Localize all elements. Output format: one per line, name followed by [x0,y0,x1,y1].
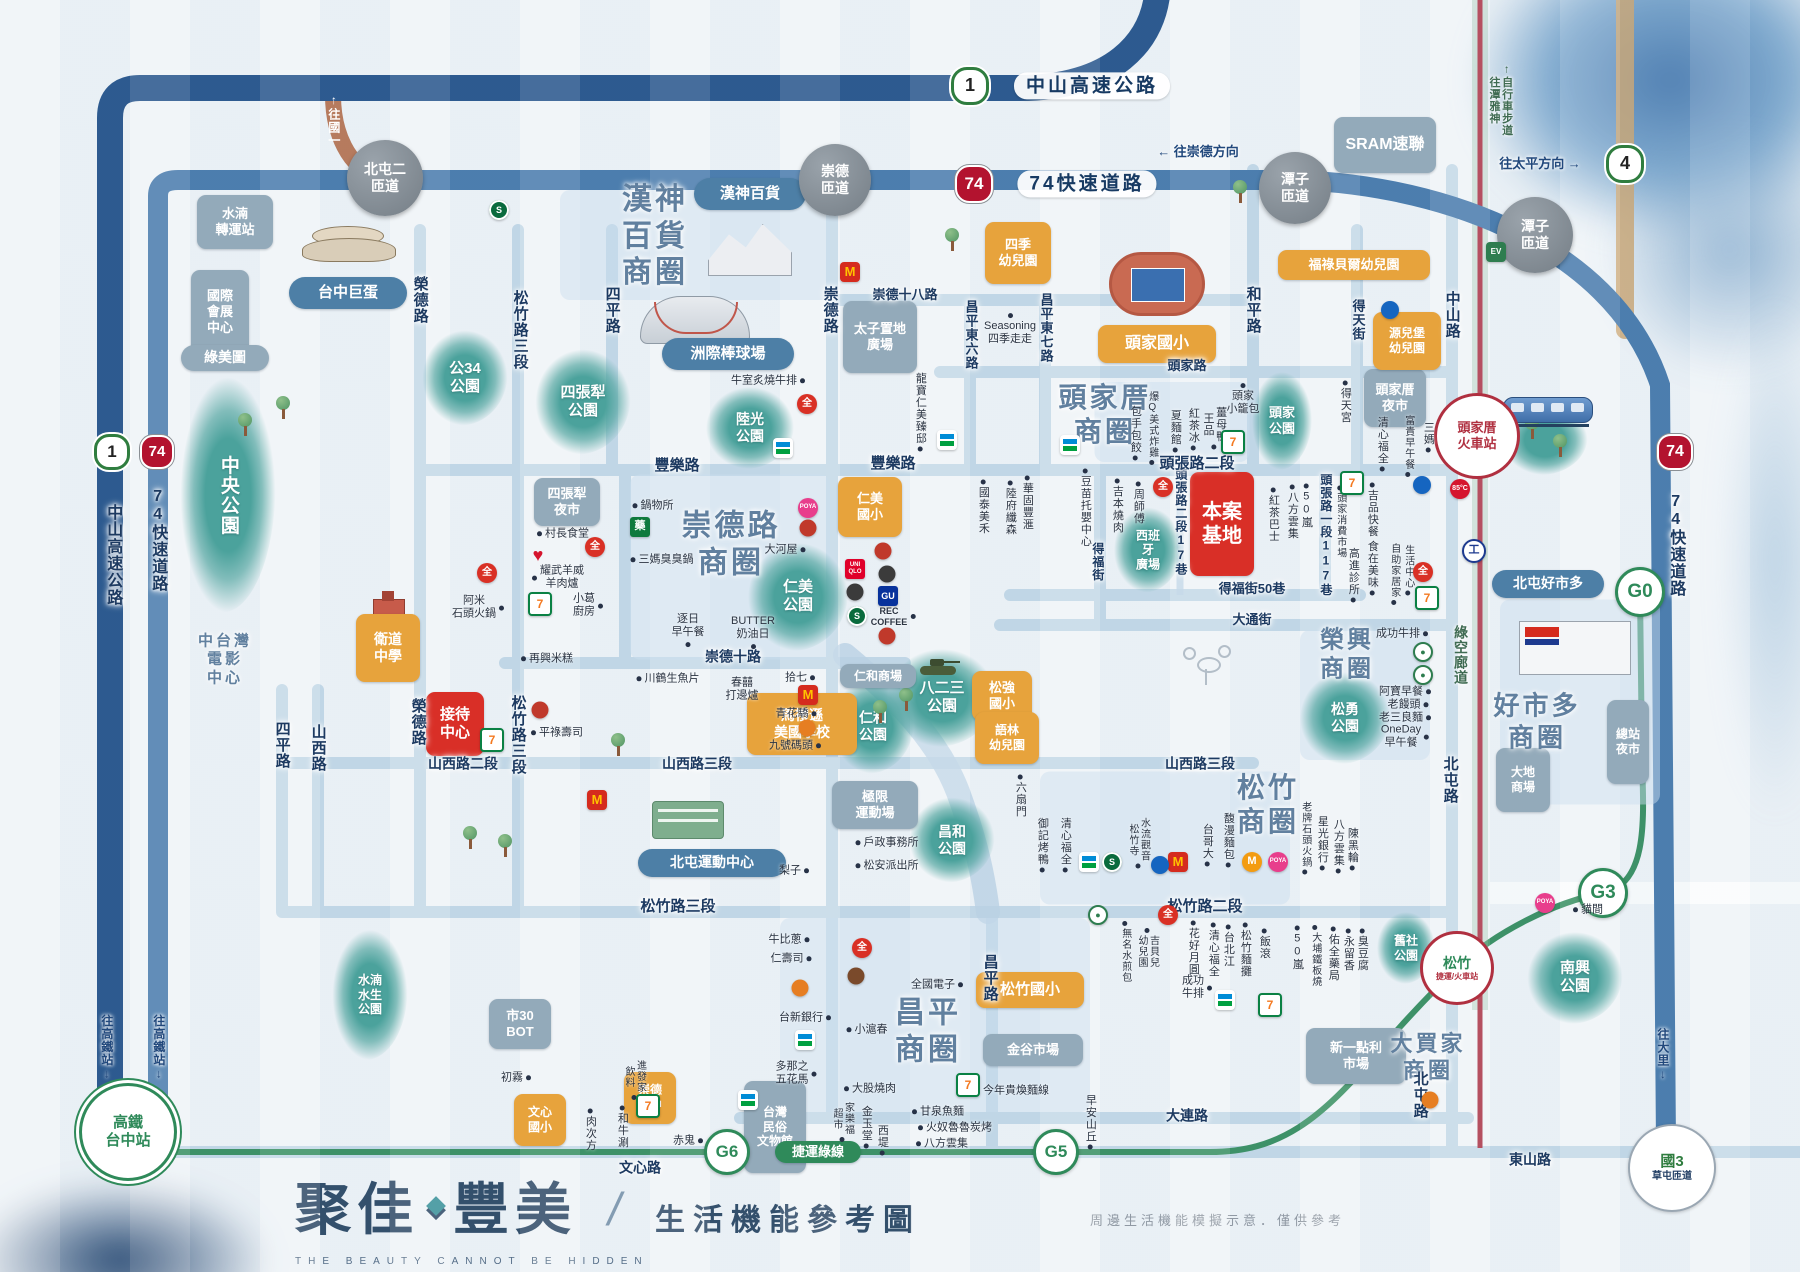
poi-label: 豆苗托嬰中心 [1079,476,1092,548]
box-北屯好市多: 北屯好市多 [1492,570,1604,598]
poi-label: 小葛 廚房 [573,593,595,620]
poi-老牌石頭火鍋: 老牌石頭火鍋 [1299,802,1311,875]
poi-戶政事務所: 戶政事務所 [856,836,919,849]
poi-label: 馥漫麵包 [1222,813,1235,861]
ic-潭子匝道: 潭子 匝道 [1497,197,1573,273]
icon-orangec-icon [792,980,809,997]
poi-六扇門: 六扇門 [1014,775,1027,818]
icon-greenc-icon: ● [1413,642,1433,662]
poi-dot-icon [918,1126,923,1131]
gst-G6: G6 [704,1129,750,1175]
st-松竹路三段: 松竹路三段 [511,290,528,370]
poi-dot-icon [1225,863,1230,868]
icon-bank-icon [1151,856,1169,874]
poi-花好月圓: 花好月圓 [1187,921,1200,976]
icon-greenc-icon: ● [1413,665,1433,685]
poi-label: 高進診所 [1347,548,1360,596]
poi-label: 小滬春 [855,1023,888,1036]
poi-dot-icon [812,712,817,717]
poi-label: 台新銀行 [779,1011,823,1024]
tree-trunk [244,426,247,436]
park-label: 公34 公園 [449,360,481,397]
poi-label: 50嵐 [1291,933,1304,971]
poi-label: 周師傅 [1132,489,1145,525]
box-市30BOT: 市30 BOT [489,999,551,1049]
icon-ev-icon: EV [1486,242,1506,262]
poi-dot-icon [1242,923,1247,928]
icon-red-icon [879,628,896,645]
poi-村長食堂: 村長食堂 [537,527,589,540]
box-四季幼兒園: 四季 幼兒園 [985,222,1051,284]
tree-crown [276,396,290,410]
poi-赤鬼: 赤鬼 [673,1134,703,1147]
poi-dot-icon [1145,928,1150,933]
poi-貓間: 貓間 [1573,903,1603,916]
sk-tank [920,657,960,675]
st-得福街: 得福街 [1090,543,1104,582]
st-中山路: 中山路 [1443,291,1460,339]
box-北屯運動中心: 北屯運動中心 [638,849,786,877]
park-四張犁公園: 四張犁 公園 [536,350,631,455]
poi-label: 耀武羊威 羊肉爐 [540,565,584,592]
st-四平路: 四平路 [603,286,620,334]
st-崇德路: 崇德路 [821,286,838,334]
poi-八方雲集: 八方雲集 [916,1137,968,1150]
poi-dot-icon [1406,591,1411,596]
poi-dot-icon [526,1076,531,1081]
poi-飯滾: 飯滾 [1258,929,1271,960]
poi-dot-icon [840,1137,845,1142]
poi-家樂福超市: 家樂福 超市 [831,1102,854,1142]
poi-label: 台哥大 [1201,824,1214,860]
rl-中山高速公路: 中山高速公路 [1014,72,1170,99]
icon-uniqlo-icon: UNI QLO [845,559,865,579]
poi-dot-icon [801,548,806,553]
dir-↑自行車步道往潭雅神: ↑自行車步道 往潭雅神 [1487,64,1512,137]
poi-dot-icon [499,606,504,611]
tree-crown [945,228,959,242]
box-源兒堡幼兒園: 源兒堡 幼兒園 [1373,312,1441,370]
poi-label: 逐日 早午餐 [672,613,705,640]
poi-dot-icon [619,1106,624,1111]
park-西班牙廣場: 西班牙 廣場 [1114,508,1182,593]
icon-brown-icon [848,968,865,985]
poi-dot-icon [856,841,861,846]
icon-gu-icon: GU [878,586,898,606]
poi-dot-icon [1359,929,1364,934]
poi-dot-icon [916,1142,921,1147]
box-頭家厝夜市: 頭家厝 夜市 [1364,369,1426,427]
poi-50嵐: 50嵐 [1291,926,1304,971]
poi-平祿壽司: 平祿壽司 [531,726,583,739]
poi-dot-icon [587,1109,592,1114]
zone-好市多商圈: 好市多 商圈 [1493,690,1580,753]
tree-crown [238,413,252,427]
icon-poya-icon: POYA [798,498,818,518]
st-山西路三段: 山西路三段 [662,755,732,772]
poi-dot-icon [1204,862,1209,867]
tree-287 [462,826,478,850]
sk-court [652,801,724,839]
poi-松竹麵攤: 松竹麵攤 [1239,923,1252,978]
icon-pxmart-icon: 全 [1158,905,1178,925]
poi-dot-icon [1424,735,1429,740]
tree-trunk [282,409,285,419]
box-語林幼兒園: 語林 幼兒園 [975,712,1039,764]
poi-label: 今年貴煥麵線 [983,1084,1049,1097]
brand-name-2: 豐美 [453,1165,577,1246]
poi-鍋物所: 鍋物所 [633,499,674,512]
park-水湳水生公園: 水湳 水生 公園 [333,930,408,1060]
park-中央公園: 中央公園 [181,378,276,613]
box-文心國小: 文心 國小 [514,1094,566,1146]
poi-多那之五花馬: 多那之 五花馬 [776,1061,817,1088]
poi-頭家小籠包: 頭家 小籠包 [1227,383,1260,417]
poi-dot-icon [637,677,642,682]
ic-北屯二匝道: 北屯二 匝道 [347,140,423,216]
tree-289 [1232,180,1248,204]
st-中山高速公路: 中山高速公路 [103,504,121,606]
park-label: 中央公園 [217,455,239,535]
tree-286 [275,396,291,420]
poi-label: 全國電子 [911,978,955,991]
poi-dot-icon [1426,716,1431,721]
st-頭張路二段17巷: 頭張路二段17巷 [1173,468,1187,576]
poi-label: 50嵐 [1300,491,1313,529]
poi-包手包餃: 包手包餃 [1129,406,1142,461]
poi-dot-icon [1330,927,1335,932]
poi-dot-icon [1369,591,1374,596]
poi-label: 肉次方 [584,1116,597,1152]
zone-榮興商圈: 榮興 商圈 [1320,626,1374,685]
poi-label: 牛比蔥 [769,933,802,946]
poi-dot-icon [686,642,691,647]
poi-dot-icon [1342,381,1347,386]
poi-爆Q美式炸雞: 爆Q美式炸雞 [1146,391,1158,465]
park-松勇公園: 松勇 公園 [1300,672,1390,764]
poi-dot-icon [1062,868,1067,873]
st-崇德十路: 崇德十路 [705,648,761,665]
icon-mcd-icon: M [798,685,818,705]
sk-costco [1519,621,1631,675]
poi-得天宮: 得天宮 [1339,381,1352,424]
poi-無名水煎包: 無名水煎包 [1119,921,1131,983]
icon-orangec-icon [799,720,816,737]
poi-label: 夏麵館 [1169,410,1182,446]
poi-豆苗托嬰中心: 豆苗托嬰中心 [1079,469,1092,548]
poi-和牛涮: 和牛涮 [616,1106,629,1149]
tree-trunk [617,746,620,756]
poi-dot-icon [537,532,542,537]
poi-label: 仁壽司 [771,952,804,965]
poi-周師傅: 周師傅 [1132,482,1145,525]
dir-綠空廊道: 綠空廊道 [1453,625,1469,685]
tree-trunk [951,241,954,251]
poi-八方雲集: 八方雲集 [1286,485,1299,540]
st-昌平路: 昌平路 [981,954,998,1002]
poi-dot-icon [844,1087,849,1092]
poi-春囍打邊爐: 春囍 打邊爐 [726,677,759,704]
st-頭張路一段117巷: 頭張路一段117巷 [1318,474,1332,597]
poi-label: 赤鬼 [673,1134,695,1147]
park-頭家公園: 頭家 公園 [1252,372,1312,470]
station-type: 捷運/火車站 [1436,972,1478,982]
park-label: 水湳 水生 公園 [358,973,382,1017]
box-金谷市場: 金谷市場 [983,1034,1083,1066]
poi-dot-icon [1008,313,1013,318]
poi-紅茶冰: 紅茶冰 [1187,408,1200,451]
poi-小葛廚房: 小葛 廚房 [573,593,603,620]
tree-crown [611,733,625,747]
poi-夏麵館: 夏麵館 [1169,410,1182,453]
brand-name-1: 聚佳 [295,1165,419,1246]
poi-label: 花好月圓 [1187,928,1200,976]
poi-川鶴生魚片: 川鶴生魚片 [637,672,700,685]
poi-dot-icon [912,1110,917,1115]
poi-label: 食在美味 [1366,541,1379,589]
st-北屯路: 北屯路 [1441,756,1458,804]
poi-OneDay早午餐: OneDay 早午餐 [1381,724,1429,751]
poi-label: 平祿壽司 [539,726,583,739]
st-大通街: 大通街 [1232,612,1271,628]
park-label: 昌和 公園 [938,823,966,857]
poi-仁壽司: 仁壽司 [771,952,812,965]
poi-頭家消費市場: 頭家消費市場 [1334,486,1346,559]
poi-dot-icon [1369,483,1374,488]
poi-label: 清心福全 [1059,818,1072,866]
icon-seven-icon: 7 [636,1094,660,1118]
icon-seven-icon: 7 [1258,993,1282,1017]
poi-華固豐滙: 華固豐滙 [1021,476,1034,531]
brand-diamond-icon [426,1196,446,1216]
poi-label: 阿米 石頭火鍋 [452,595,496,622]
icon-pxmart-icon: 全 [585,537,605,557]
poi-dot-icon [751,644,756,649]
poi-label: 村長食堂 [545,527,589,540]
poi-逐日早午餐: 逐日 早午餐 [672,613,705,647]
poi-吉品快餐: 吉品快餐 [1366,483,1379,538]
poi-label: 吉品快餐 [1366,490,1379,538]
poi-dot-icon [1241,383,1246,388]
st-昌平東六路: 昌平東六路 [963,300,978,370]
box-四張犁夜市: 四張犁 夜市 [534,478,600,526]
box-仁美國小: 仁美 國小 [838,477,902,537]
tree-293 [944,228,960,252]
poi-label: 陸府纖森 [1004,488,1017,536]
poi-label: 早安山丘 [1084,1095,1097,1143]
poi-dot-icon [1349,866,1354,871]
rl-74快速道路: 74快速道路 [1017,170,1156,197]
poi-dot-icon [1406,472,1411,477]
poi-label: 進發家 飲料 [623,1060,646,1093]
tree-crown [899,688,913,702]
st-頭家路: 頭家路 [1167,358,1206,374]
icon-bank-icon [1381,301,1399,319]
tree-trunk [1239,193,1242,203]
gst-G0: G0 [1615,567,1665,617]
poi-dot-icon [1313,925,1318,930]
poi-label: 初霧 [501,1071,523,1084]
poi-dot-icon [879,1151,884,1156]
poi-dot-icon [863,1144,868,1149]
dir-↑往國一: ↑往國一 [326,93,340,147]
poi-label: 飯滾 [1258,936,1271,960]
dir-往太平方向 →: 往太平方向 → [1499,156,1581,172]
poi-耀武羊威羊肉爐: 耀武羊威 羊肉爐 [532,565,584,592]
tree-292 [1552,434,1568,458]
poi-label: 梨子 [779,864,801,877]
poi-dot-icon [847,1028,852,1033]
icon-sbux-icon: S [847,606,867,626]
map-disclaimer: 周邊生活機能模擬示意．僅供參考 [1090,1210,1345,1229]
icon-dark-icon [847,584,864,601]
poi-青花驕: 青花驕 [776,707,817,720]
zone-漢神百貨商圈: 漢神 百貨 商圈 [622,182,688,292]
sk-dining [1177,643,1237,687]
poi-label: 大埔鐵板燒 [1309,932,1321,987]
park-label: 松勇 公園 [1331,701,1359,735]
icon-mcd-icon: M [840,262,860,282]
tree-trunk [504,847,507,857]
icon-red-icon [875,543,892,560]
sk-hanshin [708,224,792,276]
poi-label: 川鶴生魚片 [645,672,700,685]
icon-heart-icon: ♥ [528,546,548,566]
icon-family-icon [1079,852,1099,872]
zone-昌平商圈: 昌平 商圈 [895,995,961,1068]
ic-潭子匝道: 潭子 匝道 [1259,152,1331,224]
poi-dot-icon [1114,479,1119,484]
dir-往高鐵站↓: 往高鐵站↓ [99,1015,113,1082]
icon-seven-icon: 7 [528,592,552,616]
poi-永留香: 永留香 [1342,929,1355,972]
poi-label: 成功 牛排 [1182,975,1204,1002]
poi-dot-icon [856,864,861,869]
icon-greenc-icon: ● [1088,905,1108,925]
icon-red-icon [532,702,549,719]
poi-dot-icon [1425,448,1430,453]
box-仁和商場: 仁和商場 [840,664,916,688]
poi-牛室炙燒牛排: 牛室炙燒牛排 [731,374,805,387]
st-文心路: 文心路 [619,1159,661,1176]
poi-label: 紅茶巴士 [1267,495,1280,543]
st-和平路: 和平路 [1244,286,1261,334]
icon-pxmart-icon: 全 [852,938,872,958]
poi-label: 大股燒肉 [852,1082,896,1095]
tree-crown [498,834,512,848]
park-昌和公園: 昌和 公園 [910,798,995,883]
poi-dot-icon [826,1016,831,1021]
poi-三媽臭臭鍋: 三媽臭臭鍋 [631,553,694,566]
box-漢神百貨: 漢神百貨 [694,178,806,210]
poi-label: 永留香 [1342,936,1355,972]
poi-label: OneDay 早午餐 [1381,724,1421,751]
poi-label: 臭豆腐 [1356,936,1369,972]
poi-label: 鍋物所 [641,499,674,512]
poi-label: 甘泉魚麵 [920,1105,964,1118]
sk-dome [302,226,394,266]
poi-拾七: 拾七 [785,671,815,684]
poi-label: 老牌石頭火鍋 [1299,802,1311,868]
poi-高進診所: 高進診所 [1347,548,1360,603]
poi-dot-icon [1573,908,1578,913]
poi-dot-icon [1082,469,1087,474]
poi-BUTTER奶油日: BUTTER 奶油日 [731,615,775,649]
poi-dot-icon [804,869,809,874]
poi-dot-icon [958,983,963,988]
poi-label: 阿寶早餐 [1379,685,1423,698]
st-頭張路二段: 頭張路二段 [1159,455,1234,473]
poi-label: 春囍 打邊爐 [726,677,759,704]
poi-阿米石頭火鍋: 阿米 石頭火鍋 [452,595,504,622]
mst-松竹: 松竹捷運/火車站 [1420,931,1494,1005]
reception-center: 接待 中心 [426,692,484,756]
poi-label: 吉本燒肉 [1111,486,1124,534]
poi-dot-icon [812,1072,817,1077]
poi-陳黑輪: 陳黑輪 [1346,828,1359,871]
brand-tagline: THE BEAUTY CANNOT BE HIDDEN [295,1256,649,1267]
poi-水流觀音松竹寺: 水流觀音 松竹寺 [1127,818,1150,869]
st-東山路: 東山路 [1509,1151,1551,1168]
poi-台北江: 台北江 [1222,925,1235,968]
icon-c85-icon: 85°C [1450,479,1470,499]
poi-國泰美禾: 國泰美禾 [977,480,990,535]
poi-dot-icon [532,576,537,581]
tree-trunk [1531,429,1534,439]
poi-dot-icon [1087,1145,1092,1150]
poi-dot-icon [1007,481,1012,486]
dir-往高鐵站↓: 往高鐵站↓ [151,1015,165,1082]
gst-G5: G5 [1033,1129,1079,1175]
poi-label: 八方雲集 [1332,819,1345,867]
poi-label: 生活中心 [1402,545,1414,589]
poi-label: 國泰美禾 [977,487,990,535]
poi-西堤: 西堤 [876,1125,889,1156]
zone-中台灣電影中心: 中台灣 電影 中心 [198,633,252,688]
poi-label: BUTTER 奶油日 [731,615,775,642]
icon-family-icon [937,430,957,450]
poi-label: 清心福全 [1376,417,1389,465]
poi-dot-icon [1392,600,1397,605]
box-衛道中學: 衛道 中學 [356,614,420,682]
poi-dot-icon [980,480,985,485]
poi-八方雲集: 八方雲集 [1332,819,1345,874]
poi-dot-icon [1225,925,1230,930]
box-SRAM速聯: SRAM速聯 [1334,117,1436,173]
tree-crown [1553,434,1567,448]
poi-火奴魯魯炭烤: 火奴魯魯炭烤 [918,1121,992,1134]
poi-dot-icon [521,657,526,662]
poi-自助家居家: 自助家居家 [1388,543,1400,605]
poi-大埔鐵板燒: 大埔鐵板燒 [1309,925,1321,987]
poi-陸府纖森: 陸府纖森 [1004,481,1017,536]
poi-今年貴煥麵線: 今年貴煥麵線 [975,1084,1049,1097]
shield-nat: 1 [951,67,989,105]
poi-label: 頭家 小籠包 [1227,390,1260,417]
box-極限運動場: 極限 運動場 [832,781,918,829]
poi-dot-icon [1424,703,1429,708]
icon-seven-icon: 7 [480,728,504,752]
icon-orangec-icon [1422,1092,1439,1109]
poi-清心福全: 清心福全 [1059,818,1072,873]
tree-crown [463,826,477,840]
poi-三媽: 三媽 [1422,422,1435,453]
poi-臭豆腐: 臭豆腐 [1356,929,1369,972]
poi-dot-icon [810,676,815,681]
icon-family-icon [1215,990,1235,1010]
poi-dot-icon [805,938,810,943]
park-公34公園: 公34 公園 [423,331,508,426]
